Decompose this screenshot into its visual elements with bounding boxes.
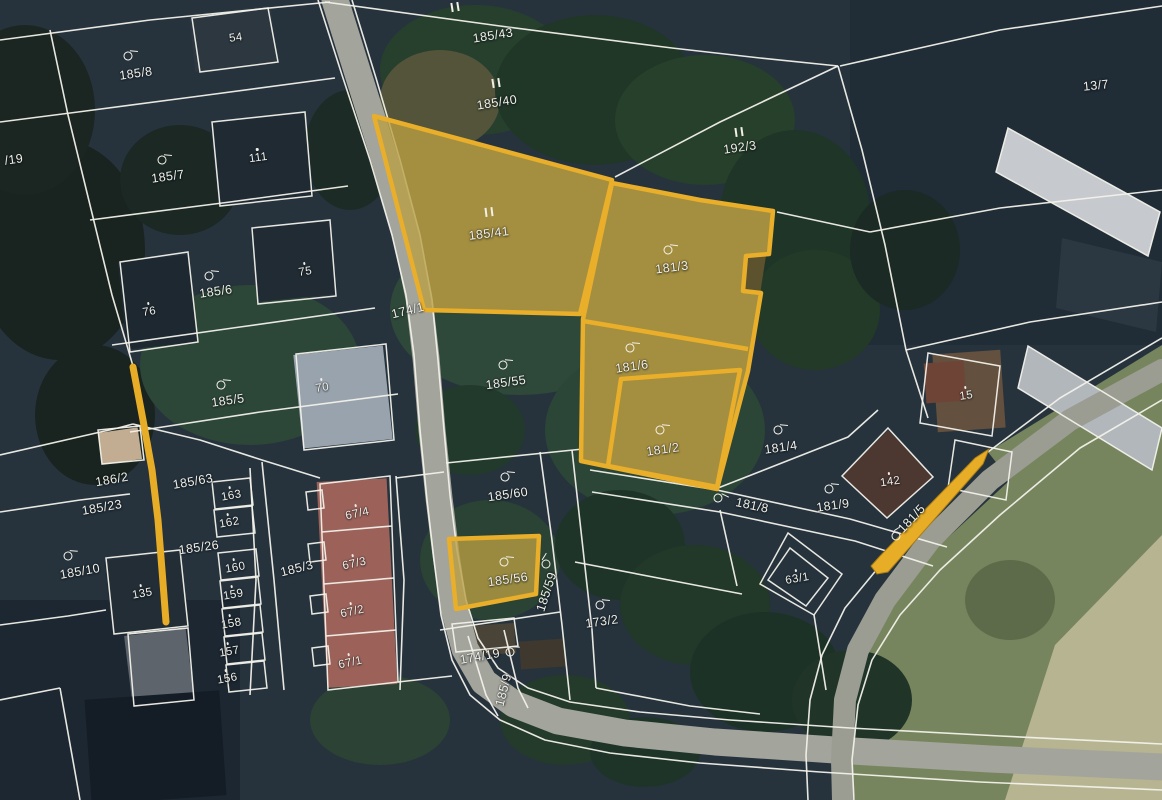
terrain-patch (85, 690, 227, 800)
map-canvas (0, 0, 1162, 800)
terrain-patch (104, 552, 188, 635)
terrain-patch (519, 638, 566, 669)
terrain-patch (850, 190, 960, 310)
terrain-patch (35, 345, 155, 485)
highlighted-parcel-185-56[interactable] (449, 536, 539, 609)
terrain-patch (310, 675, 450, 765)
terrain-patch (250, 220, 337, 302)
terrain-patch (189, 6, 277, 72)
cadastral-map: 185/43185/40192/313/754185/8/19185/71117… (0, 0, 1162, 800)
terrain-patch (98, 427, 142, 464)
terrain-patch (965, 560, 1055, 640)
terrain-patch (924, 361, 967, 404)
terrain-patch (124, 628, 194, 703)
